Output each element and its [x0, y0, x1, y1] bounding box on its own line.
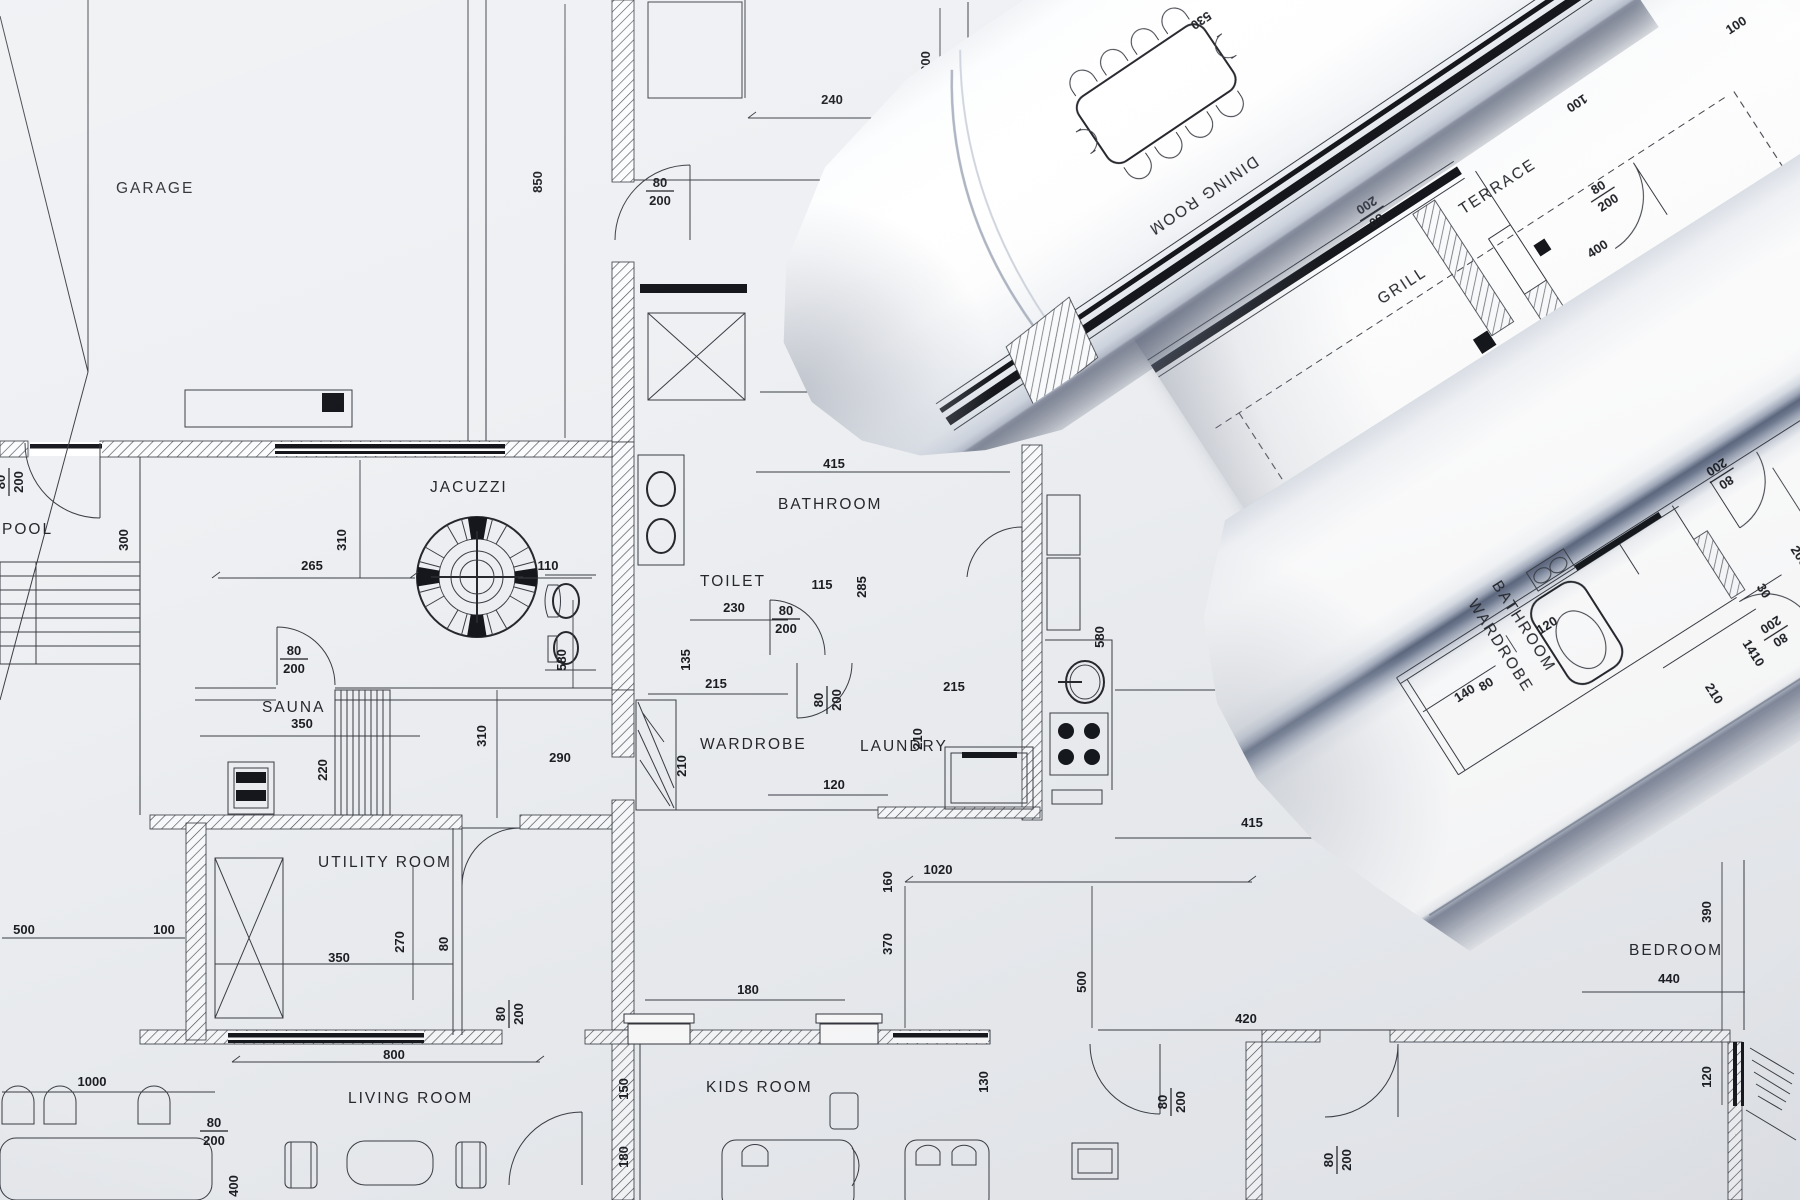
dim-label: 530: [1188, 8, 1214, 33]
dim-label: 230: [723, 600, 745, 615]
svg-text:80: 80: [1716, 472, 1736, 492]
svg-text:UTILITY ROOM: UTILITY ROOM: [318, 854, 452, 871]
svg-text:215: 215: [705, 676, 727, 691]
svg-text:230: 230: [723, 600, 745, 615]
room-label: JACUZZI: [430, 479, 508, 496]
svg-text:BATHROOM: BATHROOM: [1488, 578, 1558, 675]
svg-text:80: 80: [1476, 674, 1496, 694]
svg-text:80: 80: [1770, 630, 1790, 650]
svg-text:80: 80: [493, 1007, 508, 1021]
dim-label: 440: [1658, 971, 1680, 986]
dim-label: 1020: [924, 862, 953, 877]
dim-label: 120: [823, 777, 845, 792]
room-label: UTILITY ROOM: [318, 854, 452, 871]
dim-label: 120: [1699, 1066, 1714, 1088]
dim-label: 100: [1564, 91, 1590, 115]
svg-text:200: 200: [203, 1133, 225, 1148]
dim-label: 400: [1584, 236, 1610, 260]
svg-text:120: 120: [1699, 1066, 1714, 1088]
dim-label: 290: [549, 750, 571, 765]
room-label: DINING ROOM: [1145, 152, 1261, 238]
svg-text:80: 80: [1321, 1153, 1336, 1167]
svg-text:80: 80: [207, 1115, 221, 1130]
dim-label: 100: [153, 922, 175, 937]
svg-text:100: 100: [1564, 91, 1590, 115]
svg-text:JACUZZI: JACUZZI: [430, 479, 508, 496]
svg-text:80: 80: [779, 603, 793, 618]
dim-label: 285: [854, 576, 869, 598]
svg-text:310: 310: [334, 529, 349, 551]
dim-label: 215: [705, 676, 727, 691]
dim-label: 1000: [78, 1074, 107, 1089]
svg-text:580: 580: [1092, 626, 1107, 648]
room-label: LIVING ROOM: [348, 1090, 473, 1107]
room-label: POOL: [2, 521, 53, 538]
room-label: TOILET: [700, 573, 766, 590]
svg-text:310: 310: [474, 725, 489, 747]
svg-text:BEDROOM: BEDROOM: [1629, 942, 1723, 959]
svg-text:POOL: POOL: [2, 521, 53, 538]
svg-text:285: 285: [854, 576, 869, 598]
svg-text:KIDS ROOM: KIDS ROOM: [706, 1079, 813, 1096]
dim-label: 850: [530, 171, 545, 193]
svg-text:850: 850: [530, 171, 545, 193]
dim-label: 310: [474, 725, 489, 747]
svg-text:120: 120: [1534, 613, 1560, 637]
svg-text:180: 180: [616, 1146, 631, 1168]
svg-text:400: 400: [226, 1175, 241, 1197]
room-label: KIDS ROOM: [706, 1079, 813, 1096]
dim-label: 350: [328, 950, 350, 965]
dim-label: 200: [1788, 543, 1800, 569]
dim-label: 265: [301, 558, 323, 573]
dim-label: 215: [943, 679, 965, 694]
dim-label: 415: [1241, 815, 1263, 830]
svg-text:200: 200: [1173, 1091, 1188, 1113]
svg-text:150: 150: [616, 1078, 631, 1100]
svg-text:SAUNA: SAUNA: [262, 699, 325, 716]
dim-label: 30: [1754, 581, 1774, 601]
svg-text:200: 200: [11, 471, 26, 493]
svg-text:80: 80: [0, 475, 8, 489]
svg-text:210: 210: [1702, 680, 1726, 706]
svg-text:180: 180: [737, 982, 759, 997]
svg-text:80: 80: [287, 643, 301, 658]
svg-text:200: 200: [511, 1003, 526, 1025]
svg-text:1410: 1410: [1740, 637, 1768, 669]
room-label: WARDROBE: [700, 736, 807, 753]
svg-text:LIVING ROOM: LIVING ROOM: [348, 1090, 473, 1107]
svg-text:580: 580: [554, 649, 569, 671]
svg-text:415: 415: [823, 456, 845, 471]
svg-text:115: 115: [812, 577, 833, 592]
dim-label: 110: [538, 558, 559, 573]
svg-text:500: 500: [13, 922, 35, 937]
dim-label: 420: [1235, 1011, 1257, 1026]
dim-label: 180: [616, 1146, 631, 1168]
svg-text:200: 200: [775, 621, 797, 636]
room-label: WARDROBE: [1464, 596, 1536, 695]
svg-text:200: 200: [829, 689, 844, 711]
svg-text:80: 80: [811, 693, 826, 707]
dim-label: 270: [392, 931, 407, 953]
dim-label: 180: [737, 982, 759, 997]
dim-label: 415: [823, 456, 845, 471]
svg-text:80: 80: [1588, 177, 1608, 197]
svg-text:TOILET: TOILET: [700, 573, 766, 590]
svg-text:370: 370: [880, 933, 895, 955]
dim-label: 310: [334, 529, 349, 551]
room-label: LAUNDRY: [860, 738, 948, 755]
dim-label: 1410: [1740, 637, 1768, 669]
room-label: BATHROOM: [778, 496, 882, 513]
svg-text:DINING ROOM: DINING ROOM: [1145, 152, 1261, 238]
svg-text:1020: 1020: [924, 862, 953, 877]
svg-text:530: 530: [1188, 8, 1214, 33]
svg-text:500: 500: [1074, 971, 1089, 993]
blueprint-photo: GARAGEPOOLJACUZZISAUNATOILETBATHROOMWARD…: [0, 0, 1800, 1200]
dim-label: 115: [812, 577, 833, 592]
dim-label: 500: [1074, 971, 1089, 993]
svg-text:GRILL: GRILL: [1375, 264, 1430, 308]
svg-text:140: 140: [1451, 681, 1477, 705]
dim-label: 100: [1723, 13, 1749, 37]
svg-text:WARDROBE: WARDROBE: [1464, 596, 1536, 695]
dining-table-icon: [1048, 0, 1264, 195]
room-label: TERRACE: [1456, 156, 1539, 218]
svg-text:100: 100: [1723, 13, 1749, 37]
svg-text:300: 300: [116, 529, 131, 551]
svg-text:80: 80: [1155, 1095, 1170, 1109]
svg-text:130: 130: [976, 1071, 991, 1093]
dim-label: 390: [1699, 901, 1714, 923]
svg-text:400: 400: [1584, 236, 1610, 260]
svg-text:200: 200: [1703, 455, 1729, 479]
svg-text:200: 200: [1788, 543, 1800, 569]
svg-text:30: 30: [1754, 581, 1774, 601]
dim-label: 135: [678, 649, 693, 671]
room-label: BATHROOM: [1488, 578, 1558, 675]
svg-text:265: 265: [301, 558, 323, 573]
dim-label: 80200: [1701, 453, 1742, 496]
svg-text:800: 800: [383, 1047, 405, 1062]
svg-text:100: 100: [153, 922, 175, 937]
room-label: GRILL: [1375, 264, 1430, 308]
svg-text:LAUNDRY: LAUNDRY: [860, 738, 948, 755]
svg-text:1000: 1000: [78, 1074, 107, 1089]
svg-text:160: 160: [880, 871, 895, 893]
dim-label: 220: [315, 759, 330, 781]
dim-label: 210: [1702, 680, 1726, 706]
dim-label: 210: [674, 755, 689, 777]
svg-text:200: 200: [1758, 613, 1784, 637]
svg-text:350: 350: [291, 716, 313, 731]
svg-text:GARAGE: GARAGE: [116, 180, 194, 197]
svg-text:110: 110: [538, 558, 559, 573]
dim-label: 210: [910, 728, 925, 750]
dim-label: 580: [554, 649, 569, 671]
svg-text:350: 350: [328, 950, 350, 965]
svg-text:210: 210: [910, 728, 925, 750]
dim-label: 120: [1534, 613, 1560, 637]
dim-label: 80200: [1582, 173, 1623, 216]
dim-label: 350: [291, 716, 313, 731]
svg-text:200: 200: [1339, 1149, 1354, 1171]
dim-label: 130: [976, 1071, 991, 1093]
dim-label: 80200: [1755, 611, 1796, 654]
svg-text:200: 200: [1595, 190, 1621, 214]
dim-label: 140: [1451, 681, 1477, 705]
room-label: SAUNA: [262, 699, 325, 716]
svg-text:BATHROOM: BATHROOM: [778, 496, 882, 513]
dim-label: 160: [880, 871, 895, 893]
dim-label: 80: [436, 937, 451, 951]
svg-text:80: 80: [653, 175, 667, 190]
svg-text:420: 420: [1235, 1011, 1257, 1026]
dim-label: 500: [13, 922, 35, 937]
svg-text:210: 210: [674, 755, 689, 777]
jacuzzi-icon: [417, 517, 537, 637]
room-label: GARAGE: [116, 180, 194, 197]
svg-text:240: 240: [821, 92, 843, 107]
svg-text:415: 415: [1241, 815, 1263, 830]
svg-text:215: 215: [943, 679, 965, 694]
svg-text:390: 390: [1699, 901, 1714, 923]
svg-text:220: 220: [315, 759, 330, 781]
svg-text:WARDROBE: WARDROBE: [700, 736, 807, 753]
dim-label: 150: [616, 1078, 631, 1100]
svg-text:440: 440: [1658, 971, 1680, 986]
dim-label: 370: [880, 933, 895, 955]
svg-text:200: 200: [283, 661, 305, 676]
dim-label: 580: [1092, 626, 1107, 648]
svg-text:TERRACE: TERRACE: [1456, 156, 1539, 218]
svg-text:135: 135: [678, 649, 693, 671]
dim-label: 240: [821, 92, 843, 107]
dim-label: 400: [226, 1175, 241, 1197]
svg-text:120: 120: [823, 777, 845, 792]
dim-label: 80: [1476, 674, 1496, 694]
room-label: BEDROOM: [1629, 942, 1723, 959]
svg-text:80: 80: [436, 937, 451, 951]
dim-label: 300: [116, 529, 131, 551]
svg-text:270: 270: [392, 931, 407, 953]
svg-text:290: 290: [549, 750, 571, 765]
svg-text:200: 200: [649, 193, 671, 208]
dim-label: 800: [383, 1047, 405, 1062]
